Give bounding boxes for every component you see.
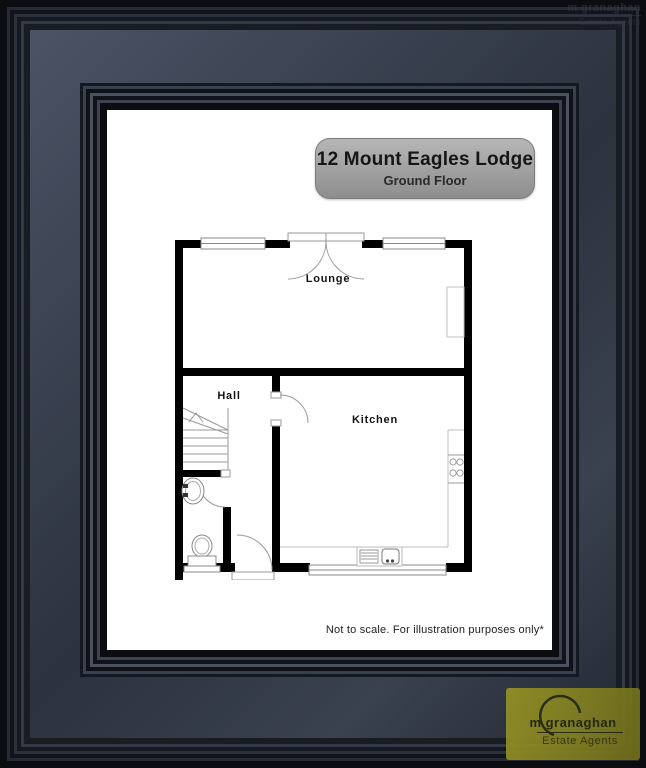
window-lounge-left [201, 238, 265, 249]
floor-plan: Lounge Hall Kitchen [175, 232, 472, 580]
sink-icon [357, 547, 402, 566]
logo-name: m granaghan [529, 715, 616, 730]
watermark-name: m granaghan [568, 2, 641, 14]
title-plaque: 12 Mount Eagles Lodge Ground Floor [315, 138, 535, 199]
windows [201, 238, 446, 575]
kitchen-door [271, 392, 308, 426]
room-label-hall: Hall [217, 390, 240, 402]
stairs [183, 408, 228, 470]
basin-icon [182, 478, 204, 504]
property-title: 12 Mount Eagles Lodge [317, 149, 533, 171]
watermark-divider [568, 15, 641, 16]
kitchen-counter [280, 430, 464, 547]
window-lounge-right [383, 238, 445, 249]
frame-moulding-outer: 12 Mount Eagles Lodge Ground Floor [0, 0, 646, 768]
white-mat: 12 Mount Eagles Lodge Ground Floor [107, 110, 552, 650]
watermark: m granaghan Estate Agents [568, 2, 641, 27]
front-door [232, 535, 274, 580]
picture-frame: 12 Mount Eagles Lodge Ground Floor [0, 0, 646, 768]
watermark-tagline: Estate Agents [568, 17, 641, 27]
framed-floorplan-image: { "plaque": { "title": "12 Mount Eagles … [0, 0, 646, 768]
agency-logo: m granaghan Estate Agents [506, 688, 640, 760]
walls [175, 240, 472, 580]
lounge-fitment [447, 287, 464, 337]
room-label-lounge: Lounge [306, 273, 351, 285]
floor-label: Ground Floor [383, 173, 466, 188]
room-label-kitchen: Kitchen [352, 414, 398, 426]
hob-icon [448, 455, 464, 483]
toilet-icon [184, 535, 220, 572]
disclaimer-text: Not to scale. For illustration purposes … [326, 624, 544, 636]
frame-wide-band: 12 Mount Eagles Lodge Ground Floor [30, 30, 616, 738]
